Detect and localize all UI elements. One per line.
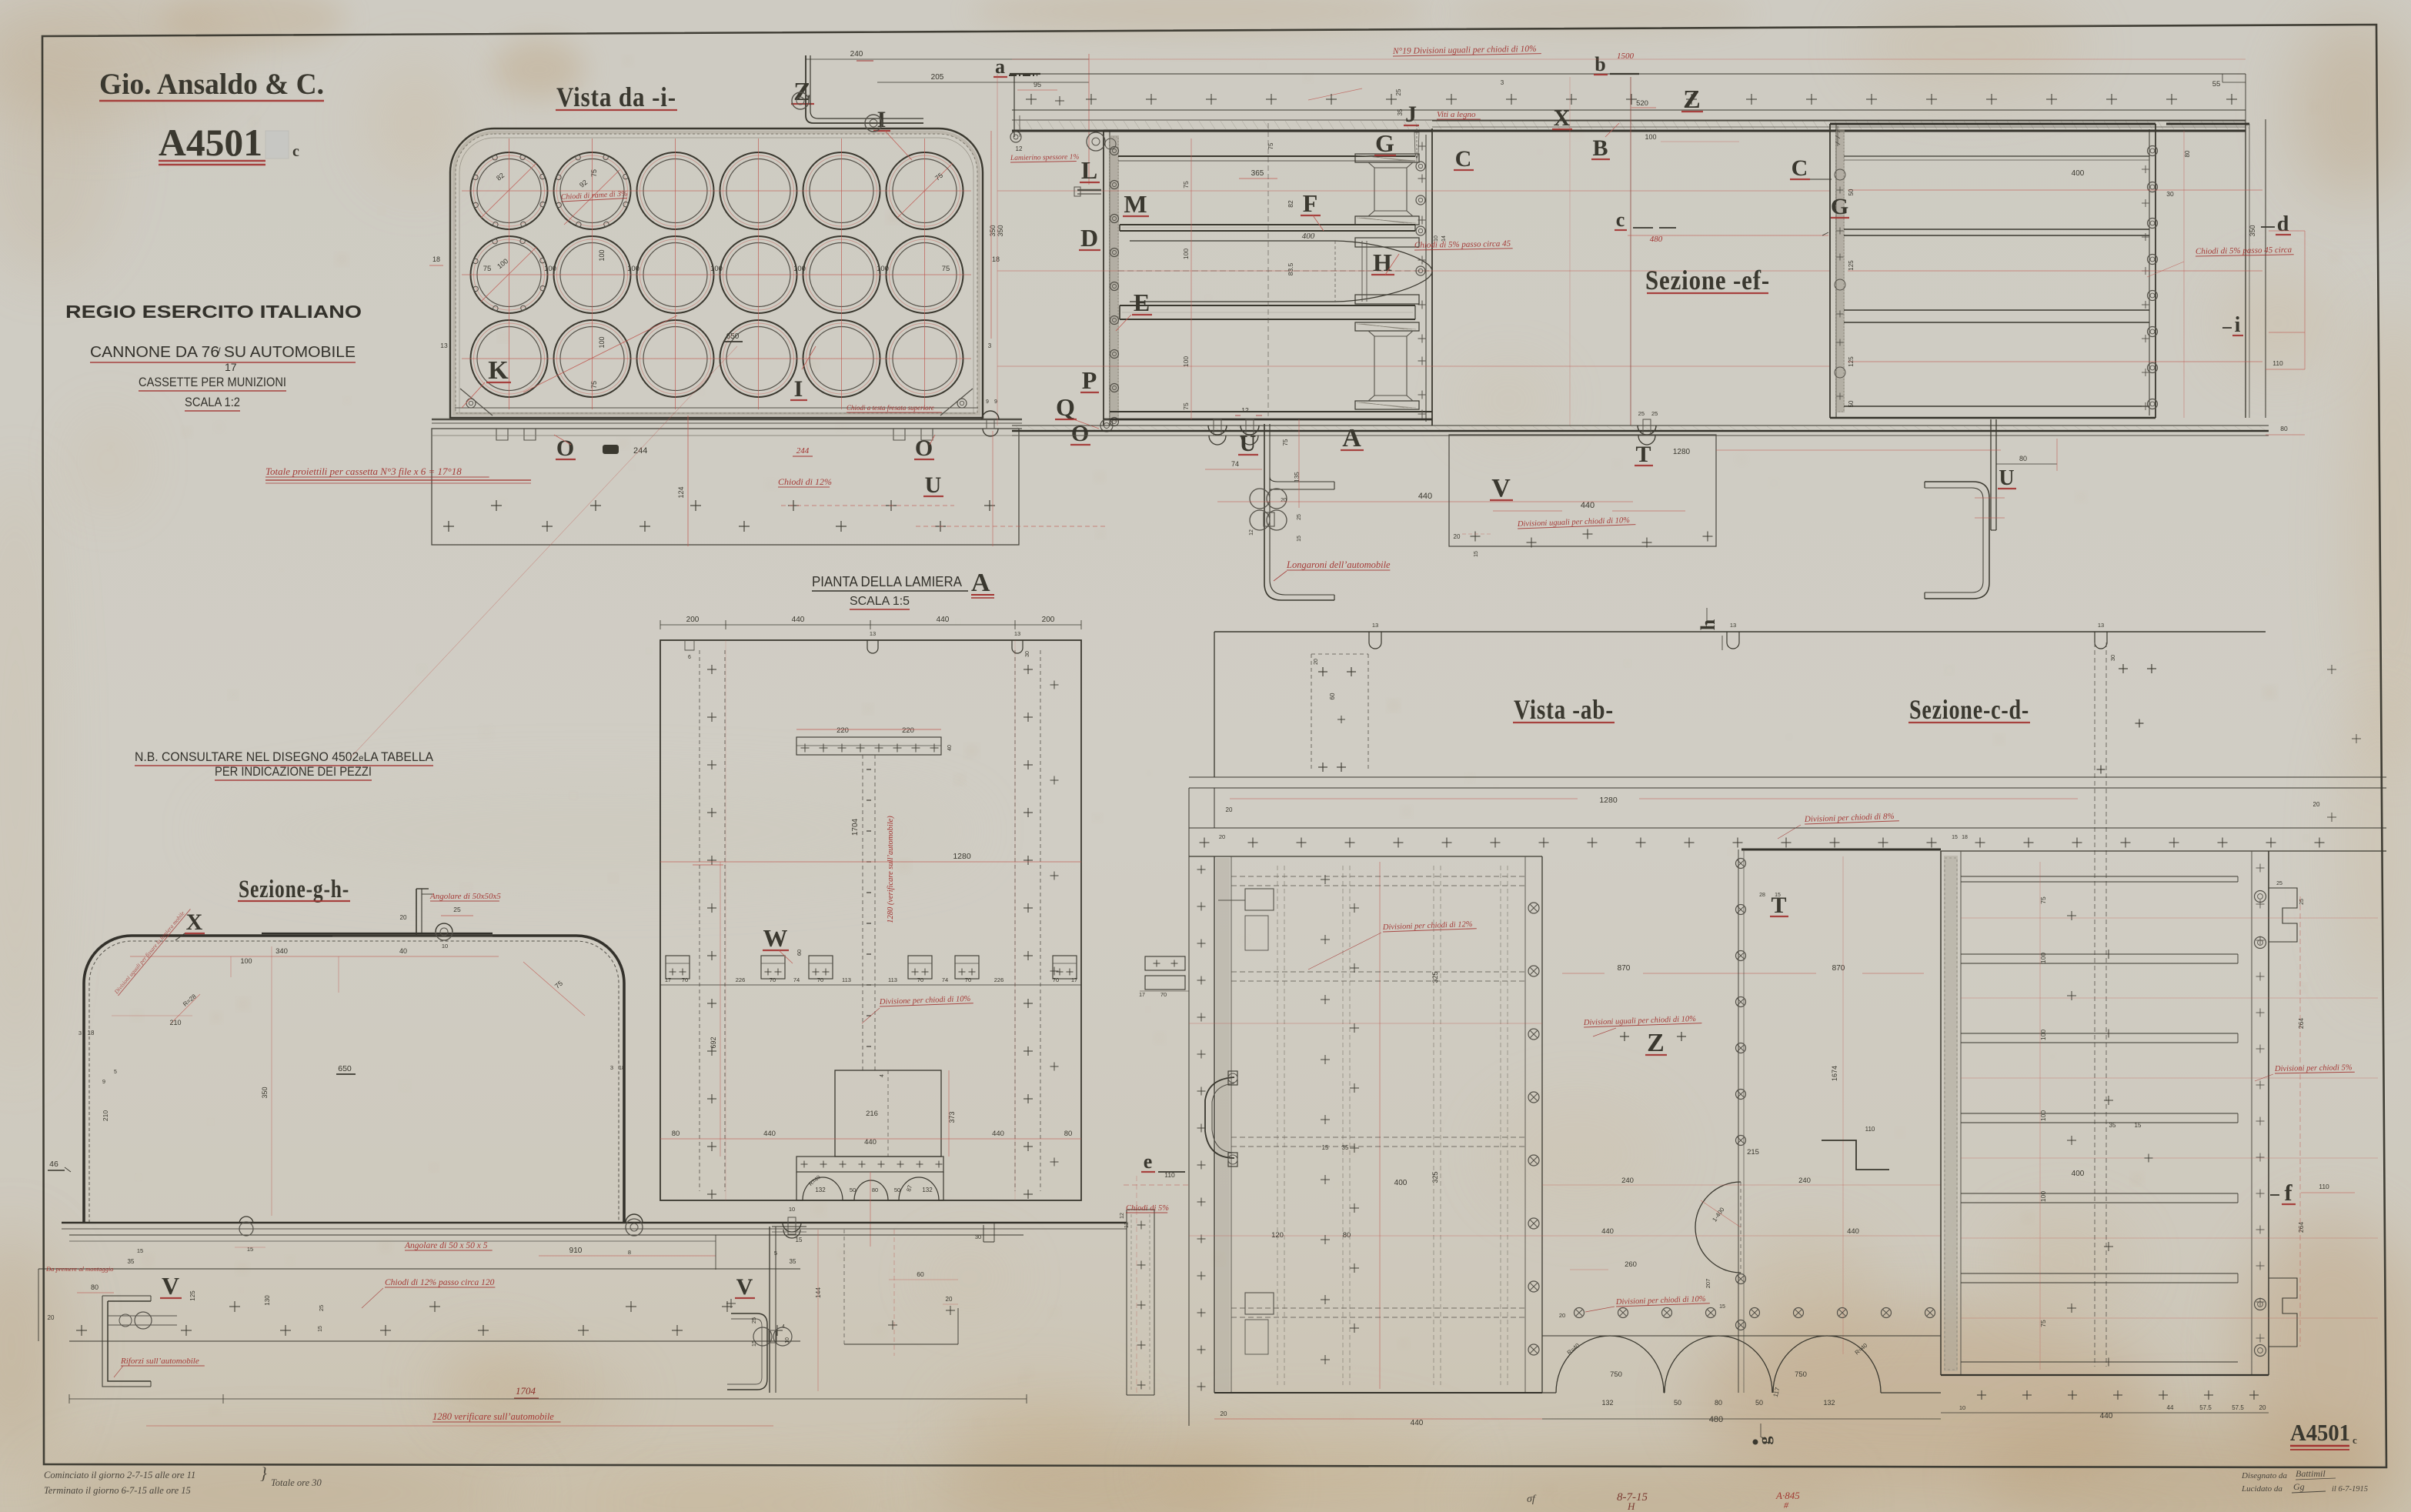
svg-text:20: 20 xyxy=(1221,1410,1227,1417)
svg-text:SCALA 1:5: SCALA 1:5 xyxy=(850,595,910,608)
svg-text:57.5: 57.5 xyxy=(2199,1404,2212,1411)
svg-text:10: 10 xyxy=(1959,1404,1965,1411)
svg-text:125: 125 xyxy=(189,1290,196,1301)
svg-text:G: G xyxy=(1831,194,1849,219)
svg-text:F: F xyxy=(1303,189,1319,217)
svg-text:70: 70 xyxy=(917,976,923,983)
svg-text:50: 50 xyxy=(1848,400,1855,407)
svg-text:CANNONE DA 76 SU AUTOMOBILE: CANNONE DA 76 SU AUTOMOBILE xyxy=(90,344,356,361)
svg-text:18: 18 xyxy=(619,1064,625,1071)
svg-text:80: 80 xyxy=(2280,425,2288,432)
svg-text:82: 82 xyxy=(1287,200,1294,208)
svg-text:}: } xyxy=(260,1464,267,1483)
svg-text:113: 113 xyxy=(842,976,851,983)
svg-text:25: 25 xyxy=(2276,881,2282,886)
svg-text:9: 9 xyxy=(102,1078,105,1085)
svg-text:I: I xyxy=(794,376,804,402)
svg-text:E: E xyxy=(1134,289,1150,316)
svg-text:c: c xyxy=(292,143,299,160)
svg-text:15: 15 xyxy=(1775,893,1781,898)
svg-text:15: 15 xyxy=(1474,551,1479,557)
svg-text:3: 3 xyxy=(988,342,992,349)
svg-text:20: 20 xyxy=(2313,801,2320,808)
svg-text:74: 74 xyxy=(1231,460,1239,468)
svg-text:75: 75 xyxy=(2039,896,2047,904)
svg-text:70: 70 xyxy=(770,976,776,983)
svg-text:e: e xyxy=(1144,1150,1154,1173)
svg-text:Sezione -ef-: Sezione -ef- xyxy=(1645,265,1770,295)
svg-text:J: J xyxy=(1405,102,1418,127)
svg-text:80: 80 xyxy=(672,1130,680,1138)
svg-text:25: 25 xyxy=(1651,410,1658,417)
svg-text:100: 100 xyxy=(2039,1030,2047,1040)
svg-text:10: 10 xyxy=(785,1337,790,1343)
svg-text:1280: 1280 xyxy=(1599,796,1618,805)
svg-text:W: W xyxy=(763,924,789,952)
svg-text:3: 3 xyxy=(78,1030,82,1036)
svg-text:50: 50 xyxy=(894,1187,900,1193)
svg-text:18: 18 xyxy=(88,1030,95,1036)
svg-text:A: A xyxy=(971,569,990,597)
svg-text:Lucidato da: Lucidato da xyxy=(2241,1484,2282,1494)
svg-text:O: O xyxy=(1071,421,1090,446)
svg-text:18: 18 xyxy=(432,255,440,263)
svg-text:226: 226 xyxy=(736,976,746,983)
svg-text:20: 20 xyxy=(1281,498,1287,503)
svg-text:1704: 1704 xyxy=(516,1385,536,1397)
svg-text:210: 210 xyxy=(102,1110,109,1121)
svg-text:75: 75 xyxy=(590,381,598,389)
svg-text:12: 12 xyxy=(1016,145,1023,152)
svg-text:Totale ore 30: Totale ore 30 xyxy=(271,1477,322,1488)
svg-text:480: 480 xyxy=(1709,1415,1723,1424)
svg-text:17: 17 xyxy=(665,976,671,983)
svg-text:12: 12 xyxy=(1123,1222,1130,1228)
svg-text:5: 5 xyxy=(774,1250,777,1257)
svg-text:60: 60 xyxy=(796,950,803,956)
svg-text:15: 15 xyxy=(1952,835,1958,840)
svg-text:#: # xyxy=(1784,1500,1789,1510)
svg-text:1280: 1280 xyxy=(953,852,971,861)
svg-text:Gg: Gg xyxy=(2293,1481,2305,1492)
svg-text:870: 870 xyxy=(1618,964,1631,973)
svg-text:70: 70 xyxy=(1053,976,1059,983)
svg-text:15: 15 xyxy=(1322,1144,1329,1151)
svg-text:74: 74 xyxy=(793,976,800,983)
svg-text:120: 120 xyxy=(1271,1231,1284,1240)
svg-text:100: 100 xyxy=(598,336,606,348)
svg-text:Angolare di 50x50x5: Angolare di 50x50x5 xyxy=(429,892,501,901)
svg-text:20: 20 xyxy=(1226,806,1233,813)
svg-text:U: U xyxy=(1240,431,1257,456)
svg-text:400: 400 xyxy=(2072,169,2085,178)
svg-text:20: 20 xyxy=(48,1314,55,1321)
svg-text:110: 110 xyxy=(2319,1183,2329,1190)
svg-text:264: 264 xyxy=(2297,1222,2305,1233)
svg-text:K: K xyxy=(488,356,509,385)
svg-text:240: 240 xyxy=(1798,1177,1811,1185)
svg-text:Viti a legno: Viti a legno xyxy=(1437,110,1476,119)
svg-text:100: 100 xyxy=(1645,133,1656,141)
svg-text:13: 13 xyxy=(1730,622,1736,629)
svg-text:SCALA 1:2: SCALA 1:2 xyxy=(185,396,240,409)
svg-text:30: 30 xyxy=(2109,655,2116,661)
svg-text:57.5: 57.5 xyxy=(2232,1404,2244,1411)
svg-text:55: 55 xyxy=(2212,80,2221,88)
svg-text:15: 15 xyxy=(2135,1122,2142,1129)
svg-text:260: 260 xyxy=(1625,1260,1637,1269)
svg-text:244: 244 xyxy=(796,446,810,456)
svg-text:13: 13 xyxy=(1014,630,1020,637)
svg-text:365: 365 xyxy=(1251,169,1264,178)
svg-text:1704: 1704 xyxy=(851,818,860,836)
svg-text:V: V xyxy=(1491,474,1511,502)
svg-text:C: C xyxy=(1792,155,1809,181)
svg-text:80: 80 xyxy=(1715,1399,1722,1407)
svg-text:35: 35 xyxy=(790,1258,796,1265)
svg-text:12: 12 xyxy=(1241,406,1249,414)
svg-text:I: I xyxy=(877,107,887,132)
svg-text:80: 80 xyxy=(91,1283,99,1291)
svg-text:18: 18 xyxy=(1962,835,1968,840)
svg-text:440: 440 xyxy=(792,616,805,624)
svg-text:A4501: A4501 xyxy=(2290,1419,2350,1446)
svg-text:N.B. CONSULTARE NEL DISEGNO 45: N.B. CONSULTARE NEL DISEGNO 4502eLA TABE… xyxy=(135,749,434,764)
svg-text:440: 440 xyxy=(763,1130,776,1138)
svg-text:17: 17 xyxy=(1139,993,1145,998)
svg-text:/: / xyxy=(218,345,221,357)
svg-text:20: 20 xyxy=(2259,1404,2266,1411)
svg-text:692: 692 xyxy=(710,1036,717,1048)
svg-text:124: 124 xyxy=(677,486,685,498)
svg-text:325: 325 xyxy=(1431,1171,1439,1183)
svg-text:10: 10 xyxy=(789,1206,795,1213)
svg-text:O: O xyxy=(556,436,575,461)
svg-text:25: 25 xyxy=(1638,410,1645,417)
svg-text:100: 100 xyxy=(1182,249,1190,259)
svg-text:B: B xyxy=(1592,135,1608,161)
svg-text:13: 13 xyxy=(440,342,448,349)
svg-text:Z: Z xyxy=(1647,1029,1665,1057)
svg-text:Riforzi sull’automobile: Riforzi sull’automobile xyxy=(120,1357,199,1366)
svg-text:L: L xyxy=(1081,156,1098,184)
svg-text:100: 100 xyxy=(598,249,606,261)
svg-text:100: 100 xyxy=(240,957,252,965)
svg-text:440: 440 xyxy=(1411,1419,1424,1427)
svg-text:95: 95 xyxy=(1034,81,1041,88)
svg-text:13: 13 xyxy=(870,630,876,637)
svg-text:13: 13 xyxy=(1372,622,1378,629)
svg-text:100: 100 xyxy=(2039,953,2047,963)
svg-text:Da premere al montaggio: Da premere al montaggio xyxy=(45,1265,113,1273)
svg-text:C: C xyxy=(1455,146,1473,172)
svg-text:750: 750 xyxy=(1795,1370,1807,1379)
svg-text:Totale proiettili per cassetta: Totale proiettili per cassetta N°3 file … xyxy=(265,466,462,477)
svg-text:20: 20 xyxy=(1454,533,1461,540)
svg-text:Vista da -i-: Vista da -i- xyxy=(556,82,676,112)
svg-text:25: 25 xyxy=(318,1305,325,1311)
svg-text:205: 205 xyxy=(931,73,944,82)
svg-text:Terminato il giorno 6-7-15 all: Terminato il giorno 6-7-15 alle ore 15 xyxy=(44,1485,191,1496)
svg-text:400: 400 xyxy=(1394,1179,1408,1187)
svg-text:40: 40 xyxy=(947,745,953,751)
svg-text:350: 350 xyxy=(989,225,997,236)
svg-text:340: 340 xyxy=(275,947,288,956)
svg-text:Angolare di 50 x 50 x 5: Angolare di 50 x 50 x 5 xyxy=(404,1241,488,1250)
svg-text:40: 40 xyxy=(399,947,407,955)
svg-text:135: 135 xyxy=(1294,472,1301,482)
svg-text:750: 750 xyxy=(1610,1370,1622,1379)
svg-text:Sezione-c-d-: Sezione-c-d- xyxy=(1909,694,2029,725)
svg-text:650: 650 xyxy=(726,332,740,341)
svg-text:350: 350 xyxy=(2249,225,2256,236)
svg-text:240: 240 xyxy=(850,50,863,58)
svg-text:440: 440 xyxy=(1847,1227,1859,1236)
svg-text:20: 20 xyxy=(946,1296,953,1303)
svg-text:30: 30 xyxy=(2166,190,2174,198)
svg-text:132: 132 xyxy=(922,1187,933,1193)
svg-text:50: 50 xyxy=(1674,1399,1681,1407)
svg-text:75: 75 xyxy=(2039,1320,2047,1327)
svg-text:100: 100 xyxy=(877,265,889,273)
svg-text:Sezione-g-h-: Sezione-g-h- xyxy=(239,876,349,903)
svg-text:T: T xyxy=(1635,442,1651,467)
svg-text:9: 9 xyxy=(994,399,997,405)
svg-text:Q: Q xyxy=(1056,393,1076,421)
svg-text:110: 110 xyxy=(2272,359,2283,367)
svg-text:13: 13 xyxy=(2098,622,2104,629)
svg-text:4: 4 xyxy=(880,1074,885,1077)
svg-text:Chiodi di 5%: Chiodi di 5% xyxy=(1126,1204,1169,1213)
svg-text:80: 80 xyxy=(872,1187,878,1193)
svg-text:A4501: A4501 xyxy=(159,121,262,164)
svg-text:O: O xyxy=(915,436,933,461)
svg-text:25: 25 xyxy=(1395,88,1402,95)
svg-text:216: 216 xyxy=(866,1110,878,1118)
svg-text:75: 75 xyxy=(1182,402,1190,410)
svg-text:6: 6 xyxy=(688,655,691,660)
svg-text:30: 30 xyxy=(975,1233,981,1240)
svg-text:Vista -ab-: Vista -ab- xyxy=(1514,694,1614,725)
svg-text:Chiodi di 12% passo circa 120: Chiodi di 12% passo circa 120 xyxy=(385,1278,495,1287)
svg-text:60: 60 xyxy=(917,1270,924,1278)
svg-text:i: i xyxy=(2235,313,2242,337)
svg-text:440: 440 xyxy=(1581,501,1595,510)
svg-text:H: H xyxy=(1627,1500,1635,1512)
svg-text:9: 9 xyxy=(986,399,989,405)
svg-text:215: 215 xyxy=(1747,1148,1759,1157)
svg-text:100: 100 xyxy=(793,265,806,273)
svg-text:35: 35 xyxy=(128,1258,135,1265)
svg-text:80: 80 xyxy=(1064,1130,1073,1138)
svg-text:U: U xyxy=(1999,466,2015,490)
svg-text:100: 100 xyxy=(710,265,723,273)
svg-text:d: d xyxy=(2277,212,2290,236)
svg-text:226: 226 xyxy=(994,976,1004,983)
svg-text:110: 110 xyxy=(1164,1171,1175,1179)
svg-text:75: 75 xyxy=(483,265,492,273)
svg-text:75: 75 xyxy=(1182,181,1190,189)
svg-text:70: 70 xyxy=(682,976,688,983)
svg-text:35: 35 xyxy=(1397,108,1404,115)
svg-text:207: 207 xyxy=(1705,1279,1711,1289)
svg-text:440: 440 xyxy=(864,1138,877,1147)
svg-text:G: G xyxy=(1375,129,1395,157)
svg-text:Chiodi di 12%: Chiodi di 12% xyxy=(778,476,832,487)
svg-text:220: 220 xyxy=(902,726,914,735)
svg-text:244: 244 xyxy=(633,446,647,456)
svg-text:440: 440 xyxy=(937,616,950,624)
svg-text:25: 25 xyxy=(750,1317,757,1323)
svg-text:125: 125 xyxy=(1848,356,1855,367)
svg-text:1280 verificare sull’automobil: 1280 verificare sull’automobile xyxy=(432,1411,554,1422)
svg-text:350: 350 xyxy=(261,1086,269,1098)
svg-text:80: 80 xyxy=(2184,150,2191,157)
svg-text:50: 50 xyxy=(1755,1399,1763,1407)
svg-text:4: 4 xyxy=(782,1324,785,1330)
svg-text:650: 650 xyxy=(338,1064,352,1073)
svg-text:110: 110 xyxy=(1865,1126,1875,1133)
svg-text:P: P xyxy=(1082,366,1098,394)
svg-text:220: 220 xyxy=(837,726,849,735)
svg-text:350: 350 xyxy=(997,225,1004,236)
svg-text:100: 100 xyxy=(544,265,556,273)
svg-text:Chiodi a testa fresata superio: Chiodi a testa fresata superiore xyxy=(847,404,934,412)
svg-text:Longaroni dell’automobile: Longaroni dell’automobile xyxy=(1286,559,1391,570)
svg-text:125: 125 xyxy=(1848,260,1855,271)
svg-text:75: 75 xyxy=(1282,439,1289,446)
svg-text:X: X xyxy=(1554,105,1571,131)
svg-text:440: 440 xyxy=(992,1130,1004,1138)
svg-text:il 6-7-1915: il 6-7-1915 xyxy=(2332,1485,2368,1494)
svg-text:440: 440 xyxy=(1418,492,1432,501)
svg-text:264: 264 xyxy=(2297,1018,2305,1029)
svg-text:5: 5 xyxy=(114,1070,117,1075)
svg-text:132: 132 xyxy=(1823,1399,1835,1407)
svg-text:20: 20 xyxy=(400,914,407,921)
svg-text:132: 132 xyxy=(815,1187,826,1193)
svg-text:Z: Z xyxy=(1683,85,1701,114)
svg-text:100: 100 xyxy=(1182,356,1190,367)
svg-text:Cominciato il giorno 2-7-15 al: Cominciato il giorno 2-7-15 alle ore 11 xyxy=(44,1470,195,1480)
svg-text:V: V xyxy=(736,1274,754,1300)
svg-text:PIANTA DELLA LAMIERA: PIANTA DELLA LAMIERA xyxy=(812,574,962,589)
svg-text:210: 210 xyxy=(169,1019,181,1026)
svg-text:3: 3 xyxy=(610,1064,613,1071)
svg-text:H: H xyxy=(1373,249,1393,276)
svg-text:15: 15 xyxy=(796,1237,803,1243)
svg-text:12: 12 xyxy=(1120,1213,1125,1219)
svg-text:M: M xyxy=(1124,190,1147,218)
svg-text:25: 25 xyxy=(1297,514,1302,520)
svg-text:30: 30 xyxy=(1025,651,1030,657)
svg-text:80: 80 xyxy=(2019,455,2027,462)
svg-text:15: 15 xyxy=(1297,536,1302,542)
svg-text:20: 20 xyxy=(1314,659,1319,665)
svg-text:20: 20 xyxy=(1219,833,1225,840)
svg-text:PER INDICAZIONE DEI PEZZI: PER INDICAZIONE DEI PEZZI xyxy=(215,764,372,779)
svg-text:15: 15 xyxy=(137,1247,143,1254)
svg-text:440: 440 xyxy=(2100,1412,2113,1420)
svg-text:U: U xyxy=(925,472,943,498)
svg-text:200: 200 xyxy=(686,616,700,624)
svg-text:17: 17 xyxy=(1071,976,1077,983)
svg-text:70: 70 xyxy=(817,976,823,983)
svg-text:240: 240 xyxy=(1621,1177,1634,1185)
svg-text:480: 480 xyxy=(1650,235,1663,244)
svg-text:REGIO ESERCITO ITALIANO: REGIO ESERCITO ITALIANO xyxy=(65,302,362,322)
svg-text:1674: 1674 xyxy=(1831,1066,1838,1081)
svg-text:44: 44 xyxy=(2167,1404,2174,1411)
svg-text:D: D xyxy=(1080,224,1099,252)
svg-text:35: 35 xyxy=(2109,1122,2116,1129)
svg-text:75: 75 xyxy=(1267,142,1274,149)
svg-text:1280: 1280 xyxy=(1673,448,1691,456)
svg-text:c: c xyxy=(1616,209,1626,231)
svg-text:h: h xyxy=(1697,619,1719,630)
svg-text:132: 132 xyxy=(1601,1399,1613,1407)
svg-text:440: 440 xyxy=(1601,1227,1614,1236)
svg-text:CASSETTE PER MUNIZIONI: CASSETTE PER MUNIZIONI xyxy=(139,375,286,389)
svg-text:f: f xyxy=(2285,1180,2293,1206)
svg-text:113: 113 xyxy=(888,976,897,983)
svg-text:100: 100 xyxy=(627,265,639,273)
svg-text:A: A xyxy=(1342,424,1362,452)
svg-text:Battimil: Battimil xyxy=(2296,1468,2326,1479)
svg-text:X: X xyxy=(186,910,204,935)
svg-text:75: 75 xyxy=(590,169,598,177)
svg-text:3: 3 xyxy=(1501,79,1504,86)
svg-text:18: 18 xyxy=(992,255,1000,263)
svg-text:70: 70 xyxy=(965,976,971,983)
svg-text:46: 46 xyxy=(49,1160,58,1169)
svg-text:400: 400 xyxy=(2072,1170,2085,1178)
svg-text:c: c xyxy=(2353,1434,2357,1446)
svg-text:1280 (verificare sull’automobi: 1280 (verificare sull’automobile) xyxy=(887,816,895,923)
svg-text:100: 100 xyxy=(2039,1191,2047,1202)
svg-text:400: 400 xyxy=(1302,232,1315,241)
svg-text:25: 25 xyxy=(453,906,461,913)
svg-text:15: 15 xyxy=(247,1246,253,1253)
svg-text:15: 15 xyxy=(1719,1304,1725,1310)
svg-text:b: b xyxy=(1595,53,1606,75)
svg-text:V: V xyxy=(162,1272,180,1300)
svg-text:35: 35 xyxy=(1342,1144,1349,1151)
svg-text:130: 130 xyxy=(264,1295,271,1306)
svg-text:15: 15 xyxy=(750,1340,757,1347)
svg-text:Disegnato da: Disegnato da xyxy=(2241,1471,2287,1480)
svg-text:80: 80 xyxy=(1343,1231,1351,1240)
svg-text:200: 200 xyxy=(1042,616,1055,624)
svg-text:520: 520 xyxy=(1636,99,1648,108)
svg-text:12: 12 xyxy=(1249,529,1254,536)
svg-text:a: a xyxy=(995,55,1006,78)
svg-text:28: 28 xyxy=(1759,893,1765,898)
svg-text:8: 8 xyxy=(628,1249,631,1256)
svg-text:20: 20 xyxy=(1559,1312,1565,1319)
svg-text:Gio. Ansaldo & C.: Gio. Ansaldo & C. xyxy=(99,68,324,101)
svg-text:100: 100 xyxy=(2039,1110,2047,1121)
svg-text:325: 325 xyxy=(1431,971,1439,983)
svg-text:83.5: 83.5 xyxy=(1287,262,1294,275)
svg-text:50: 50 xyxy=(850,1187,856,1193)
svg-text:373: 373 xyxy=(948,1111,956,1123)
svg-text:15: 15 xyxy=(318,1326,323,1332)
svg-text:910: 910 xyxy=(569,1247,583,1255)
svg-text:74: 74 xyxy=(942,976,948,983)
svg-text:70: 70 xyxy=(1160,991,1167,998)
svg-text:10: 10 xyxy=(442,943,448,950)
